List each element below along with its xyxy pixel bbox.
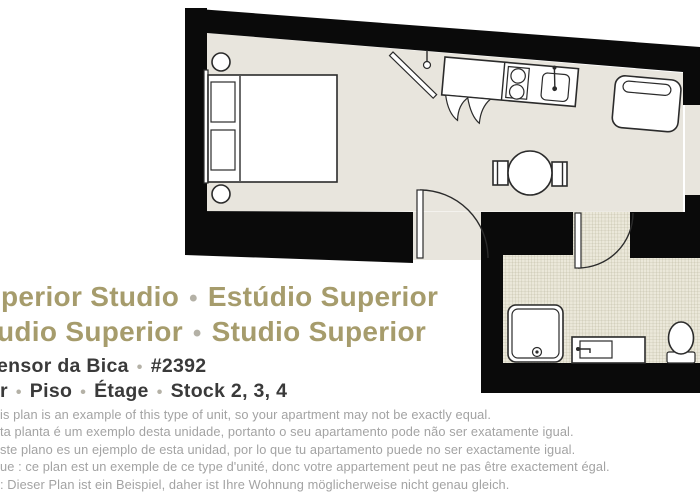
subtitle-line-1: ensor da Bica•#2392 [0, 355, 206, 378]
window-opening [685, 105, 700, 195]
disclaimer-line-es: ste plano es un ejemplo de esta unidad, … [0, 441, 610, 458]
disclaimer-line-en: is plan is an example of this type of un… [0, 406, 610, 423]
two-burner-stove [506, 67, 530, 100]
floors-text: Stock 2, 3, 4 [171, 380, 288, 402]
bullet-separator: • [80, 384, 86, 401]
title-text: Estúdio Superior [208, 281, 438, 312]
pillow [211, 82, 235, 122]
subtitle-text: Piso [30, 380, 72, 402]
bullet-separator: • [16, 384, 22, 401]
subtitle-text: r [0, 380, 8, 402]
armchair [611, 75, 681, 133]
toilet-bowl [669, 322, 694, 354]
disclaimer-line-fr: ue : ce plan est un exemple de ce type d… [0, 458, 610, 475]
disclaimer-block: is plan is an example of this type of un… [0, 406, 610, 493]
title-line-2: udio Superior•Studio Superior [0, 316, 426, 348]
title-text: perior Studio [1, 281, 179, 312]
table-stool-right [552, 162, 567, 186]
bullet-separator: • [157, 384, 163, 401]
toilet [667, 322, 695, 363]
title-line-1: perior Studio•Estúdio Superior [1, 281, 438, 313]
bedside-stool-bottom [212, 185, 230, 203]
table-stool-left [493, 161, 508, 185]
title-text: Studio Superior [212, 316, 427, 347]
faucet [576, 347, 580, 351]
round-dining-table [508, 151, 552, 195]
subtitle-line-2: r•Piso•Étage•Stock 2, 3, 4 [0, 380, 287, 403]
vanity-sink [572, 337, 645, 363]
page: perior Studio•Estúdio Superior udio Supe… [0, 0, 700, 500]
door-leaf [575, 213, 581, 268]
disclaimer-line-de: : Dieser Plan ist ein Beispiel, daher is… [0, 476, 610, 493]
title-text: udio Superior [0, 316, 183, 347]
unit-number: #2392 [151, 355, 207, 377]
tv-bracket-pivot [424, 62, 431, 69]
shower [508, 305, 563, 362]
subtitle-text: ensor da Bica [0, 355, 129, 377]
bedside-stool-top [212, 53, 230, 71]
door-leaf [417, 190, 423, 258]
double-bed [204, 70, 337, 183]
disclaimer-line-pt: ta planta é um exemplo desta unidade, po… [0, 423, 610, 440]
subtitle-text: Étage [94, 380, 149, 402]
pillow [211, 130, 235, 170]
bullet-separator: • [193, 320, 202, 347]
bullet-separator: • [137, 359, 143, 376]
bullet-separator: • [189, 285, 198, 312]
